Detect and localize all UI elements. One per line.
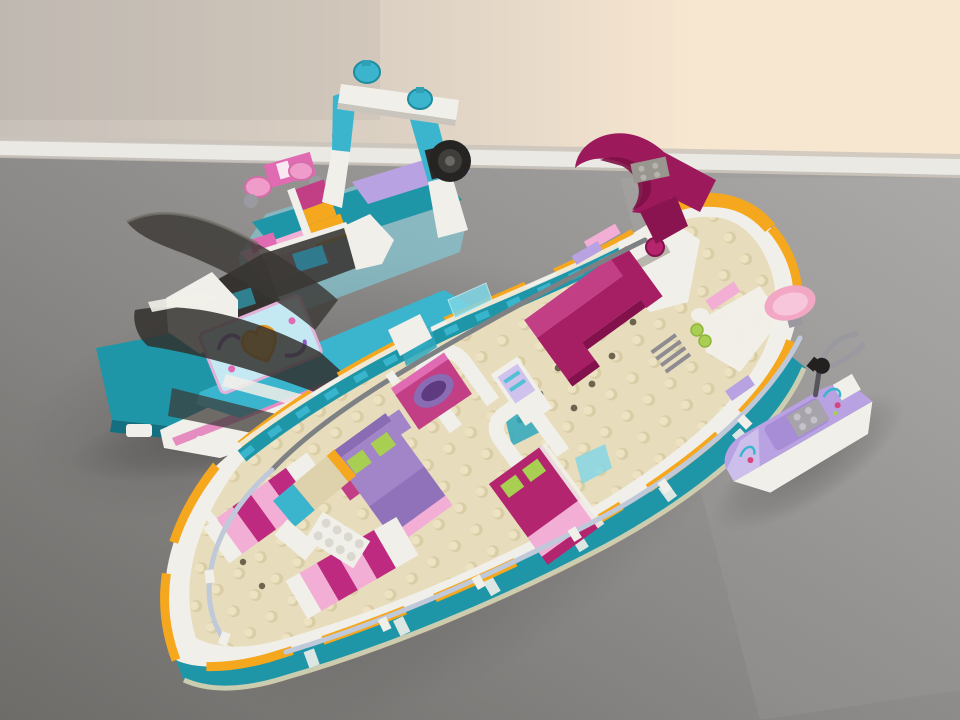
- drum: [289, 162, 313, 180]
- photo-stage: [0, 0, 960, 720]
- cymbal: [244, 194, 258, 208]
- lego-dolphin-cruiser-photo: [0, 0, 960, 720]
- white-cylinder: [691, 308, 709, 322]
- deck-hole: [571, 405, 578, 412]
- deck-hole: [589, 381, 596, 388]
- deck-hole: [609, 353, 616, 360]
- bumper: [196, 436, 222, 449]
- bumper: [126, 424, 152, 437]
- drum: [245, 177, 271, 197]
- winch-hub: [445, 156, 455, 166]
- deck-hole: [240, 559, 246, 565]
- wall-corner-shade: [0, 0, 380, 120]
- lime-bottle: [699, 335, 711, 347]
- deck-hole: [630, 319, 637, 326]
- rail-clip: [204, 569, 215, 583]
- deck-hole: [259, 583, 265, 589]
- dome-stud: [416, 87, 424, 93]
- lime-bottle: [691, 324, 703, 336]
- dome-stud: [362, 60, 371, 66]
